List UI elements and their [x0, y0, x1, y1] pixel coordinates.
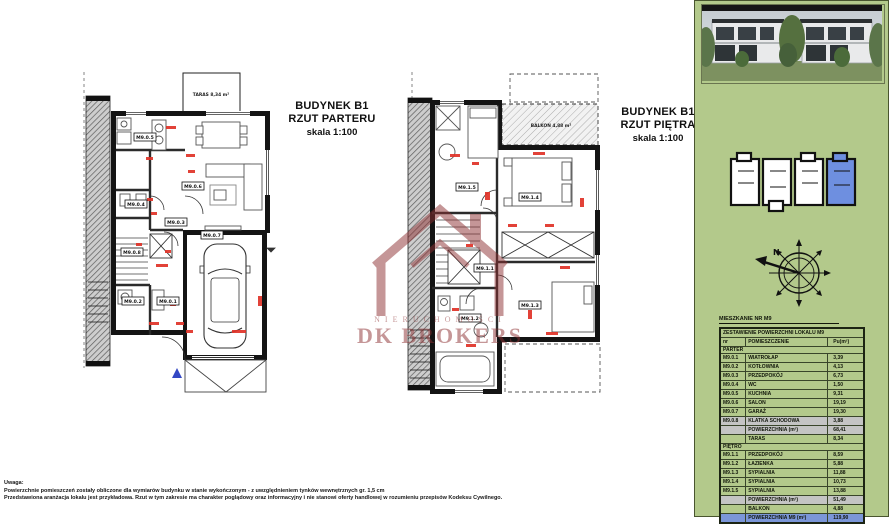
- site-plan: [728, 151, 858, 215]
- table-row: M9.0.5KUCHNIA9,31: [720, 390, 864, 399]
- cell-nm: SALON: [746, 399, 828, 408]
- table-row: M9.1.4SYPIALNIA10,73: [720, 478, 864, 487]
- cell-vl: 1,50: [828, 381, 864, 390]
- table-section-row: PARTER: [720, 347, 864, 354]
- room-label: M9.1.5: [458, 185, 476, 191]
- driveway: [185, 360, 266, 392]
- compass-rose: N: [753, 229, 839, 311]
- title-line: skala 1:100: [286, 126, 378, 139]
- table-row: M9.0.4WC1,50: [720, 381, 864, 390]
- room-label: M9.1.4: [521, 195, 539, 201]
- table-row: M9.0.6SALON19,19: [720, 399, 864, 408]
- table-row: M9.1.3SYPIALNIA11,88: [720, 469, 864, 478]
- cell-nr: [720, 514, 746, 524]
- pietro-title: BUDYNEK B1 RZUT PIĘTRA skala 1:100: [612, 106, 704, 145]
- room-label: M9.0.8: [123, 250, 141, 256]
- room-label: M9.0.1: [159, 299, 177, 305]
- cell-nm: WC: [746, 381, 828, 390]
- table-row: BALKON4,88: [720, 505, 864, 514]
- wardrobe: [502, 232, 594, 258]
- cell-nr: M9.0.1: [720, 354, 746, 363]
- cell-vl: 8,59: [828, 451, 864, 460]
- room-label: M9.0.4: [127, 202, 145, 208]
- cell-nr: M9.1.5: [720, 487, 746, 496]
- cell-vl: 8,34: [828, 435, 864, 444]
- cell-vl: 19,30: [828, 408, 864, 417]
- table-row: POWIERZCHNIA (m²)51,49: [720, 496, 864, 505]
- cell-nr: [720, 505, 746, 514]
- cell-vl: 10,73: [828, 478, 864, 487]
- taras-label: TARAS 8,34 m²: [193, 92, 229, 98]
- cell-nr: M9.0.6: [720, 399, 746, 408]
- cell-nm: SYPIALNIA: [746, 487, 828, 496]
- cell-vl: 51,49: [828, 496, 864, 505]
- table-caption: MIESZKANIE NR M9: [719, 316, 839, 324]
- cell-nr: M9.0.7: [720, 408, 746, 417]
- room-label: M9.0.7: [203, 233, 221, 239]
- cell-nm: BALKON: [746, 505, 828, 514]
- cell-vl: 68,41: [828, 426, 864, 435]
- floor-plan-sheet: TARAS 8,34 m²: [0, 0, 892, 529]
- table-section-row: PIĘTRO: [720, 444, 864, 451]
- section-label: PIĘTRO: [720, 444, 864, 451]
- cell-nm: PRZEDPOKÓJ: [746, 372, 828, 381]
- development-photo: [701, 4, 885, 84]
- parter-plan: TARAS 8,34 m²: [84, 72, 275, 392]
- cell-nr: M9.0.3: [720, 372, 746, 381]
- cell-vl: 119,90: [828, 514, 864, 524]
- area-table-body: PARTERM9.0.1WIATROŁAP3,39M9.0.2KOTŁOWNIA…: [720, 347, 864, 524]
- cell-nm: ŁAZIENKA: [746, 460, 828, 469]
- room-label: M9.0.5: [136, 135, 154, 141]
- table-row: M9.0.8KLATKA SCHODOWA3,88: [720, 417, 864, 426]
- sidebar: N MIESZKANIE NR M9 ZESTAWIENIE POWIERZCH…: [694, 0, 889, 517]
- photo-scene: [702, 5, 882, 81]
- cell-nm: SYPIALNIA: [746, 478, 828, 487]
- roof-outline: [505, 344, 600, 392]
- cell-nm: SYPIALNIA: [746, 469, 828, 478]
- room-label: M9.1.1: [476, 266, 494, 272]
- cell-nr: M9.0.8: [720, 417, 746, 426]
- cell-vl: 11,88: [828, 469, 864, 478]
- cell-nm: KLATKA SCHODOWA: [746, 417, 828, 426]
- cell-nm: KUCHNIA: [746, 390, 828, 399]
- room-label: M9.0.6: [184, 184, 202, 190]
- cell-nr: M9.1.4: [720, 478, 746, 487]
- table-header-row: nr POMIESZCZENIE Pu(m²): [720, 338, 864, 347]
- title-line: RZUT PIĘTRA: [612, 119, 704, 132]
- cell-nm: PRZEDPOKÓJ: [746, 451, 828, 460]
- north-label: N: [773, 248, 780, 257]
- cell-vl: 4,13: [828, 363, 864, 372]
- cell-nm: POWIERZCHNIA (m²): [746, 426, 828, 435]
- cell-nm: WIATROŁAP: [746, 354, 828, 363]
- cell-nm: KOTŁOWNIA: [746, 363, 828, 372]
- title-line: BUDYNEK B1: [286, 100, 378, 113]
- table-row: POWIERZCHNIA (m²)68,41: [720, 426, 864, 435]
- table-row: M9.0.2KOTŁOWNIA4,13: [720, 363, 864, 372]
- table-row: M9.1.5SYPIALNIA13,88: [720, 487, 864, 496]
- cell-nr: M9.1.3: [720, 469, 746, 478]
- cell-nm: POWIERZCHNIA (m²): [746, 496, 828, 505]
- cell-nr: M9.1.2: [720, 460, 746, 469]
- room-label: M9.0.3: [167, 220, 185, 226]
- table-row: M9.1.2ŁAZIENKA5,88: [720, 460, 864, 469]
- cell-vl: 19,19: [828, 399, 864, 408]
- cell-nr: [720, 496, 746, 505]
- cell-nr: [720, 426, 746, 435]
- site-plan-highlighted-unit: [827, 153, 855, 205]
- table-row: M9.0.1WIATROŁAP3,39: [720, 354, 864, 363]
- table-title: ZESTAWIENIE POWIERZCHNI LOKALU M9: [720, 328, 864, 338]
- area-table: ZESTAWIENIE POWIERZCHNI LOKALU M9 nr POM…: [719, 327, 865, 524]
- plans-canvas: TARAS 8,34 m²: [0, 0, 700, 529]
- staircase: [116, 234, 172, 280]
- col-header-nr: nr: [720, 338, 746, 347]
- entry-triangle: [172, 368, 182, 378]
- cell-vl: 6,73: [828, 372, 864, 381]
- col-header-room: POMIESZCZENIE: [746, 338, 828, 347]
- title-line: RZUT PARTERU: [286, 113, 378, 126]
- cell-nr: M9.0.4: [720, 381, 746, 390]
- cell-nr: M9.0.2: [720, 363, 746, 372]
- cell-vl: 3,88: [828, 417, 864, 426]
- table-row: M9.1.1PRZEDPOKÓJ8,59: [720, 451, 864, 460]
- cell-vl: 4,88: [828, 505, 864, 514]
- cell-nm: GARAŻ: [746, 408, 828, 417]
- neighbour-strip: [86, 96, 110, 366]
- cell-nr: M9.0.5: [720, 390, 746, 399]
- section-label: PARTER: [720, 347, 864, 354]
- title-line: BUDYNEK B1: [612, 106, 704, 119]
- room-label: M9.1.3: [521, 303, 539, 309]
- balkon-label: BALKON 4,88 m²: [531, 123, 572, 129]
- table-row: POWIERZCHNIA M9 (m²)119,90: [720, 514, 864, 524]
- room-label: M9.0.2: [124, 299, 142, 305]
- watermark-text: DK BROKERS: [357, 323, 523, 348]
- title-line: skala 1:100: [612, 132, 704, 145]
- table-title-row: ZESTAWIENIE POWIERZCHNI LOKALU M9: [720, 328, 864, 338]
- cell-vl: 3,39: [828, 354, 864, 363]
- cell-nr: M9.1.1: [720, 451, 746, 460]
- balcony: BALKON 4,88 m²: [502, 74, 598, 145]
- table-row: M9.0.7GARAŻ19,30: [720, 408, 864, 417]
- cell-vl: 13,88: [828, 487, 864, 496]
- col-header-area: Pu(m²): [828, 338, 864, 347]
- table-row: M9.0.3PRZEDPOKÓJ6,73: [720, 372, 864, 381]
- cell-nr: [720, 435, 746, 444]
- cell-nm: POWIERZCHNIA M9 (m²): [746, 514, 828, 524]
- cell-vl: 9,31: [828, 390, 864, 399]
- cell-vl: 5,88: [828, 460, 864, 469]
- parter-title: BUDYNEK B1 RZUT PARTERU skala 1:100: [286, 100, 378, 139]
- terrace: TARAS 8,34 m²: [183, 73, 240, 113]
- cell-nm: TARAS: [746, 435, 828, 444]
- table-row: TARAS8,34: [720, 435, 864, 444]
- furniture: [117, 118, 262, 310]
